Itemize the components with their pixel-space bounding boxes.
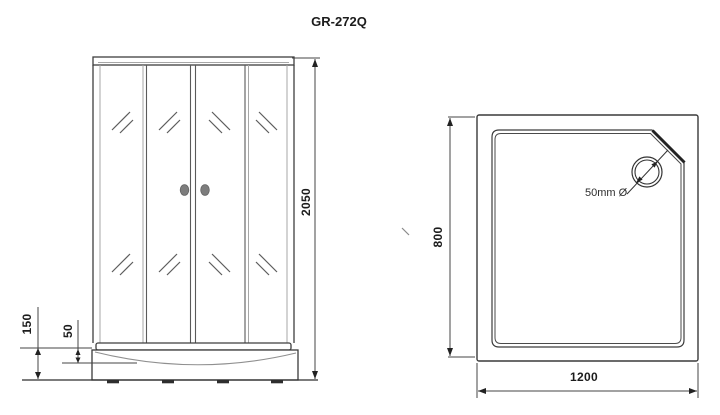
- dimension-2050: 2050: [292, 58, 320, 379]
- dimension-150-label: 150: [20, 314, 34, 335]
- glass-frame-lines: [93, 65, 294, 343]
- arrow-right-icon: [689, 388, 697, 394]
- door-handles: [180, 185, 209, 196]
- glass-reflection-mark: [159, 254, 180, 275]
- glass-reflection-mark: [112, 112, 133, 133]
- glass-reflection-mark: [209, 112, 230, 133]
- glass-reflection-mark: [112, 254, 133, 275]
- dimension-1200: 1200: [477, 363, 698, 398]
- door-handle: [180, 185, 189, 196]
- dimension-800-label: 800: [431, 227, 445, 248]
- bottom-rail: [96, 343, 291, 350]
- door-handle: [201, 185, 210, 196]
- dimension-2050-label: 2050: [299, 188, 313, 216]
- dimension-50-label: 50: [61, 324, 75, 338]
- arrow-up-icon: [35, 348, 41, 355]
- stray-mark: [402, 228, 409, 235]
- top-view: 50mm Ø 800 1200: [431, 115, 698, 398]
- glass-reflection-mark: [159, 112, 180, 133]
- glass-reflection-marks: [112, 112, 277, 275]
- dimension-1200-label: 1200: [570, 370, 598, 384]
- top-rail: [93, 57, 294, 65]
- drain-label: 50mm Ø: [585, 187, 628, 199]
- arrow-up-icon: [447, 118, 453, 126]
- arrow-up-icon: [312, 59, 318, 67]
- glass-reflection-mark: [209, 254, 230, 275]
- technical-drawing: GR-272Q: [0, 0, 720, 415]
- drawing-canvas: GR-272Q: [0, 0, 720, 415]
- front-view: 2050 150 50: [20, 57, 320, 382]
- glass-reflection-mark: [256, 254, 277, 275]
- tray-outline: [477, 115, 698, 361]
- arrow-down-icon: [312, 371, 318, 379]
- arrow-down-icon: [447, 348, 453, 356]
- arrow-up-icon: [76, 349, 81, 355]
- arrow-down-icon: [76, 358, 81, 364]
- arrow-left-icon: [478, 388, 486, 394]
- dimension-150: 150: [20, 307, 92, 379]
- dimension-800: 800: [431, 117, 475, 357]
- glass-reflection-mark: [256, 112, 277, 133]
- model-title: GR-272Q: [311, 14, 367, 29]
- arrow-down-icon: [35, 372, 41, 379]
